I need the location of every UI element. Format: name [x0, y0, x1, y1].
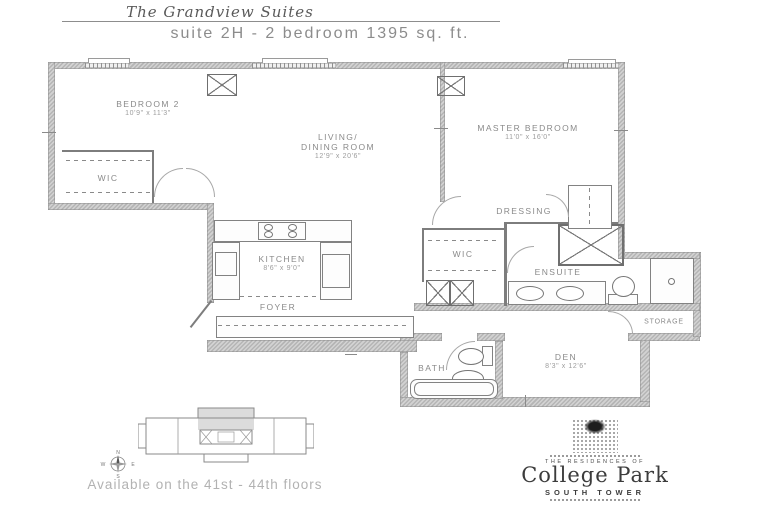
counter-edge — [240, 296, 320, 297]
building-keyplan — [138, 404, 314, 470]
room-label-wic1: WIC — [98, 173, 119, 183]
wall-left — [48, 62, 55, 210]
logo-subtitle: SOUTH TOWER — [515, 488, 675, 497]
room-dims: 11'0" x 16'0" — [477, 134, 578, 141]
room-name: KITCHEN — [258, 254, 305, 264]
dim-tick — [614, 130, 628, 131]
svg-text:E: E — [131, 462, 135, 468]
door-arc-icon — [154, 168, 183, 197]
room-dims: 12'9" x 20'6" — [301, 153, 375, 160]
toilet-icon — [612, 276, 635, 297]
vanity-sink-icon — [516, 286, 544, 301]
column-icon — [437, 76, 465, 96]
vanity-sink-icon — [556, 286, 584, 301]
wic1-wall-top — [62, 150, 154, 152]
closet-rod — [66, 160, 150, 161]
room-label-storage: STORAGE — [644, 319, 684, 326]
closet-divider — [589, 188, 590, 224]
door-arc-icon — [432, 196, 461, 225]
availability-note: Available on the 41st - 44th floors — [85, 477, 325, 492]
brand-title: The Grandview Suites — [60, 3, 380, 21]
wall-foyer-bottom — [207, 340, 417, 352]
dim-tick — [525, 395, 526, 407]
room-name: DINING ROOM — [301, 142, 375, 152]
kitchen-sink-icon — [215, 252, 237, 276]
room-name: WIC — [453, 249, 474, 259]
wall-bedroom2-bottom — [48, 203, 214, 210]
room-name: BATH — [418, 363, 446, 373]
header-divider — [62, 21, 500, 22]
tree-dots-icon — [572, 419, 618, 453]
room-name: DRESSING — [496, 206, 552, 216]
burner-icon — [288, 231, 297, 238]
dim-tick — [345, 354, 357, 355]
burner-icon — [264, 224, 273, 231]
dotted-rule — [550, 499, 640, 501]
fridge-icon — [322, 254, 350, 288]
room-label-living: LIVING/ DINING ROOM 12'9" x 20'6" — [301, 132, 375, 160]
room-label-kitchen: KITCHEN 8'6" x 9'0" — [258, 254, 305, 272]
window-master-icon — [563, 63, 619, 68]
burner-icon — [264, 231, 273, 238]
dim-tick — [42, 132, 56, 133]
svg-text:N: N — [116, 450, 120, 456]
suite-title: suite 2H - 2 bedroom 1395 sq. ft. — [95, 25, 545, 43]
room-label-den: DEN 8'3" x 12'6" — [545, 352, 587, 370]
compass-icon: N S E W — [98, 450, 138, 478]
room-name: DEN — [545, 352, 587, 362]
door-arc-icon — [186, 168, 215, 197]
room-label-foyer: FOYER — [260, 302, 296, 312]
wall-den-right — [640, 340, 650, 402]
door-arc-icon — [446, 341, 475, 370]
room-name: ENSUITE — [535, 267, 582, 277]
wic2-wall-left — [422, 228, 424, 282]
tree-canopy-icon — [584, 419, 606, 434]
closet-rod — [218, 325, 410, 326]
shower-icon — [558, 224, 624, 266]
column-icon — [207, 74, 237, 96]
closet-rod — [428, 240, 500, 241]
room-dims: 10'9" x 11'3" — [116, 110, 180, 117]
bathtub-inner — [414, 382, 494, 396]
ensuite-wall-left — [504, 222, 507, 306]
door-arc-icon — [608, 311, 633, 334]
dryer-icon — [450, 280, 474, 306]
washer-icon — [426, 280, 450, 306]
room-name: STORAGE — [644, 319, 684, 326]
room-dims: 8'6" x 9'0" — [258, 265, 305, 272]
dotted-rule — [550, 455, 640, 457]
room-name: LIVING/ — [301, 132, 375, 142]
room-label-dressing: DRESSING — [496, 206, 552, 216]
wall-storage-bottom — [628, 333, 700, 341]
room-name: WIC — [98, 173, 119, 183]
room-dims: 8'3" x 12'6" — [545, 363, 587, 370]
room-label-ensuite: ENSUITE — [535, 267, 582, 277]
foyer-closet-icon — [216, 316, 414, 338]
wall-right — [693, 252, 701, 337]
room-name: BEDROOM 2 — [116, 99, 180, 109]
logo-name: College Park — [515, 465, 675, 486]
room-label-bath: BATH — [418, 363, 446, 373]
door-arc-icon — [507, 246, 534, 273]
drain-icon — [668, 278, 675, 285]
closet-rod — [66, 192, 150, 193]
room-label-bedroom2: BEDROOM 2 10'9" x 11'3" — [116, 99, 180, 117]
room-label-master: MASTER BEDROOM 11'0" x 16'0" — [477, 123, 578, 141]
closet-shelf — [428, 270, 500, 271]
wall-bath-top-right — [477, 333, 505, 341]
developer-logo: THE RESIDENCES OF College Park SOUTH TOW… — [515, 419, 675, 505]
burner-icon — [288, 224, 297, 231]
room-name: FOYER — [260, 302, 296, 312]
svg-text:W: W — [101, 462, 106, 468]
dim-tick — [434, 128, 448, 129]
window-living-icon — [252, 63, 336, 68]
entry-door-icon — [190, 300, 213, 328]
window-bedroom2-icon — [85, 63, 129, 68]
wall-top — [48, 62, 625, 69]
wic2-wall-top — [422, 228, 506, 230]
linen-closet-icon — [568, 185, 612, 229]
floorplan-page: The Grandview Suites suite 2H - 2 bedroo… — [0, 0, 760, 505]
room-label-wic2: WIC — [453, 249, 474, 259]
room-name: MASTER BEDROOM — [477, 123, 578, 133]
